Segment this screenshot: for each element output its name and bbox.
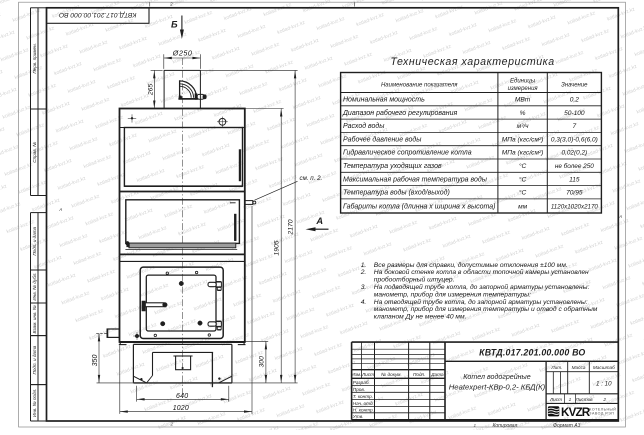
svg-text:МПа (кгс/см²): МПа (кгс/см²): [502, 150, 544, 157]
svg-text:50-100: 50-100: [564, 110, 585, 117]
svg-text:Техническая характеристика: Техническая характеристика: [390, 56, 554, 68]
svg-text:2: 2: [602, 397, 606, 402]
svg-text:640: 640: [176, 393, 188, 400]
svg-text:Значение: Значение: [561, 83, 588, 89]
svg-text:Инв. № подл.: Инв. № подл.: [32, 389, 37, 418]
svg-text:А: А: [58, 207, 62, 212]
svg-text:манометр, прибор для измерения: манометр, прибор для измерения температу…: [374, 305, 598, 313]
svg-text:Котел водогрейные: Котел водогрейные: [463, 373, 531, 381]
svg-text:%: %: [520, 110, 526, 117]
svg-text:Формат А3: Формат А3: [553, 423, 581, 429]
svg-text:Единицы: Единицы: [510, 78, 536, 84]
svg-text:KVZR: KVZR: [561, 406, 591, 419]
svg-text:3.: 3.: [361, 284, 367, 291]
svg-text:А: А: [315, 216, 323, 226]
svg-text:115: 115: [569, 176, 580, 183]
svg-text:300: 300: [259, 356, 266, 368]
svg-text:0,2: 0,2: [570, 96, 579, 103]
svg-text:Копировал: Копировал: [492, 423, 517, 429]
svg-text:0,3(3,0)-0,6(6,0): 0,3(3,0)-0,6(6,0): [551, 136, 598, 143]
svg-text:КВТД.017.201.00.000 ВО: КВТД.017.201.00.000 ВО: [479, 348, 585, 358]
svg-text:Дата: Дата: [430, 372, 444, 377]
svg-text:Лист: Лист: [549, 397, 562, 402]
svg-text:см. п. 2.: см. п. 2.: [300, 175, 323, 182]
svg-text:350: 350: [92, 355, 99, 367]
svg-text:Максимальная рабочая температу: Максимальная рабочая температура воды: [343, 175, 488, 183]
svg-text:манометр, прибор для измерения: манометр, прибор для измерения температу…: [374, 290, 531, 298]
svg-text:2170: 2170: [288, 219, 295, 235]
svg-text:Наименование показателя: Наименование показателя: [381, 83, 458, 89]
svg-text:Все размеры для справки, допус: Все размеры для справки, допустимые откл…: [374, 261, 568, 269]
svg-text:Пров.: Пров.: [353, 387, 365, 392]
svg-text:°С: °С: [519, 189, 527, 197]
svg-text:Рабочее давление воды: Рабочее давление воды: [343, 135, 422, 143]
svg-text:2: 2: [169, 2, 173, 7]
svg-text:КВТД.017.201.00.000 ВО: КВТД.017.201.00.000 ВО: [58, 11, 136, 18]
svg-text:На боковой стенке котла в обла: На боковой стенке котла в области топочн…: [374, 268, 589, 276]
svg-text:Справ. №: Справ. №: [32, 142, 37, 163]
svg-text:На отводящей трубе котла, до з: На отводящей трубе котла, до запорной ар…: [374, 298, 588, 306]
svg-text:Т. контр.: Т. контр.: [353, 394, 373, 399]
svg-text:клапаном Ду не менее 40 мм.: клапаном Ду не менее 40 мм.: [374, 314, 467, 321]
svg-text:Подп. и дата: Подп. и дата: [32, 226, 37, 255]
svg-text:Масштаб: Масштаб: [593, 365, 615, 370]
svg-text:Диапазон рабочего регулировани: Диапазон рабочего регулирования: [342, 109, 458, 117]
svg-text:Листов: Листов: [575, 397, 594, 402]
svg-text:МВт: МВт: [515, 96, 531, 103]
svg-text:1905: 1905: [274, 240, 281, 255]
svg-text:7: 7: [573, 123, 577, 130]
svg-text:Инв. № дубл.: Инв. № дубл.: [32, 272, 37, 300]
svg-text:Взам. инв. №: Взам. инв. №: [32, 305, 37, 333]
svg-text:Подп. и дата: Подп. и дата: [32, 345, 37, 374]
svg-text:Масса: Масса: [572, 365, 586, 370]
svg-text:Н. контр.: Н. контр.: [353, 408, 374, 413]
svg-text:Подп.: Подп.: [413, 372, 425, 377]
svg-text:пробоотборный штуцер.: пробоотборный штуцер.: [374, 276, 455, 284]
svg-text:1120х1020х2170: 1120х1020х2170: [551, 203, 599, 210]
svg-text:не более 250: не более 250: [555, 162, 594, 170]
svg-text:2: 2: [170, 421, 174, 426]
svg-text:Разраб.: Разраб.: [353, 380, 370, 385]
svg-text:Гидравлическое сопротивление к: Гидравлическое сопротивление котла: [343, 149, 472, 157]
svg-text:70/95: 70/95: [566, 190, 583, 197]
svg-text:На подводящей трубе котла, до: На подводящей трубе котла, до запорной а…: [374, 283, 590, 291]
svg-text:Расход воды: Расход воды: [343, 122, 385, 130]
svg-text:№ докум.: № докум.: [381, 372, 402, 377]
svg-text:Изм.: Изм.: [351, 372, 361, 377]
svg-text:Утв.: Утв.: [353, 414, 364, 419]
svg-text:м³/ч: м³/ч: [517, 123, 530, 130]
svg-text:Температура воды (вход/выход): Температура воды (вход/выход): [343, 189, 450, 197]
svg-text:1: 1: [474, 423, 477, 428]
svg-text:Ø250: Ø250: [172, 48, 193, 57]
svg-text:265: 265: [147, 84, 154, 97]
svg-text:1 : 10: 1 : 10: [596, 381, 612, 388]
svg-text:1.: 1.: [361, 262, 367, 269]
svg-text:2.: 2.: [360, 269, 367, 276]
svg-text:ЗАВОД РЭП: ЗАВОД РЭП: [589, 412, 614, 416]
svg-text:1: 1: [569, 397, 572, 402]
svg-text:Лист: Лист: [361, 372, 374, 377]
svg-text:°С: °С: [519, 162, 527, 170]
svg-text:измерения: измерения: [508, 86, 539, 92]
svg-text:0,02(0,2): 0,02(0,2): [562, 150, 588, 157]
svg-text:Габариты котла (длинна х ширин: Габариты котла (длинна х ширина х высота…: [343, 202, 496, 210]
svg-text:°С: °С: [519, 175, 527, 183]
svg-text:Нач. отд.: Нач. отд.: [353, 401, 374, 406]
svg-text:МПа (кгс/см²): МПа (кгс/см²): [502, 136, 544, 143]
svg-text:4.: 4.: [361, 299, 367, 306]
svg-text:Номинальная мощность: Номинальная мощность: [343, 96, 425, 103]
svg-text:Лит.: Лит.: [550, 365, 562, 370]
svg-text:мм: мм: [518, 203, 528, 210]
svg-text:1020: 1020: [173, 405, 189, 412]
svg-text:Б: Б: [171, 20, 178, 30]
svg-text:Температура уходящих газов: Температура уходящих газов: [343, 162, 442, 170]
svg-text:Перв. примен.: Перв. примен.: [32, 43, 37, 74]
svg-text:Heatexpert-КВр-0,2- КБД(К): Heatexpert-КВр-0,2- КБД(К): [449, 382, 546, 391]
